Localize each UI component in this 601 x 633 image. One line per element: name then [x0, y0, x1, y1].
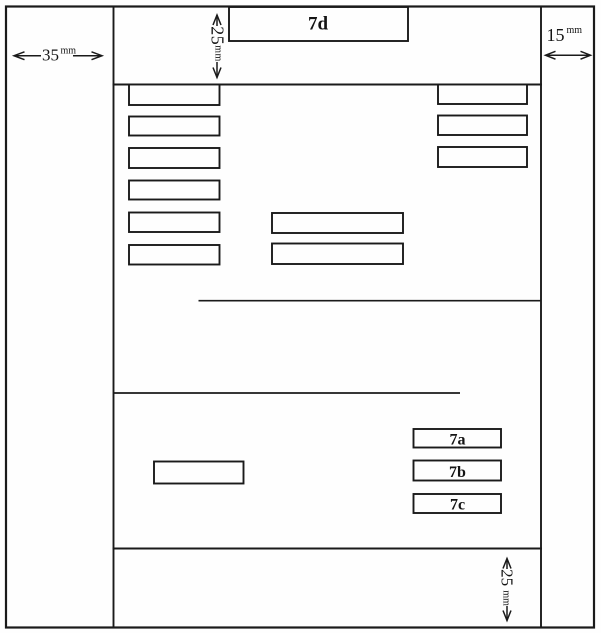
svg-text:mm: mm [61, 46, 77, 57]
svg-text:7c: 7c [450, 497, 465, 514]
svg-text:7a: 7a [450, 432, 466, 449]
svg-text:7d: 7d [308, 14, 329, 35]
svg-text:35: 35 [42, 46, 59, 65]
svg-text:15: 15 [547, 25, 565, 45]
svg-text:mm: mm [567, 25, 583, 36]
svg-text:7b: 7b [449, 464, 466, 481]
